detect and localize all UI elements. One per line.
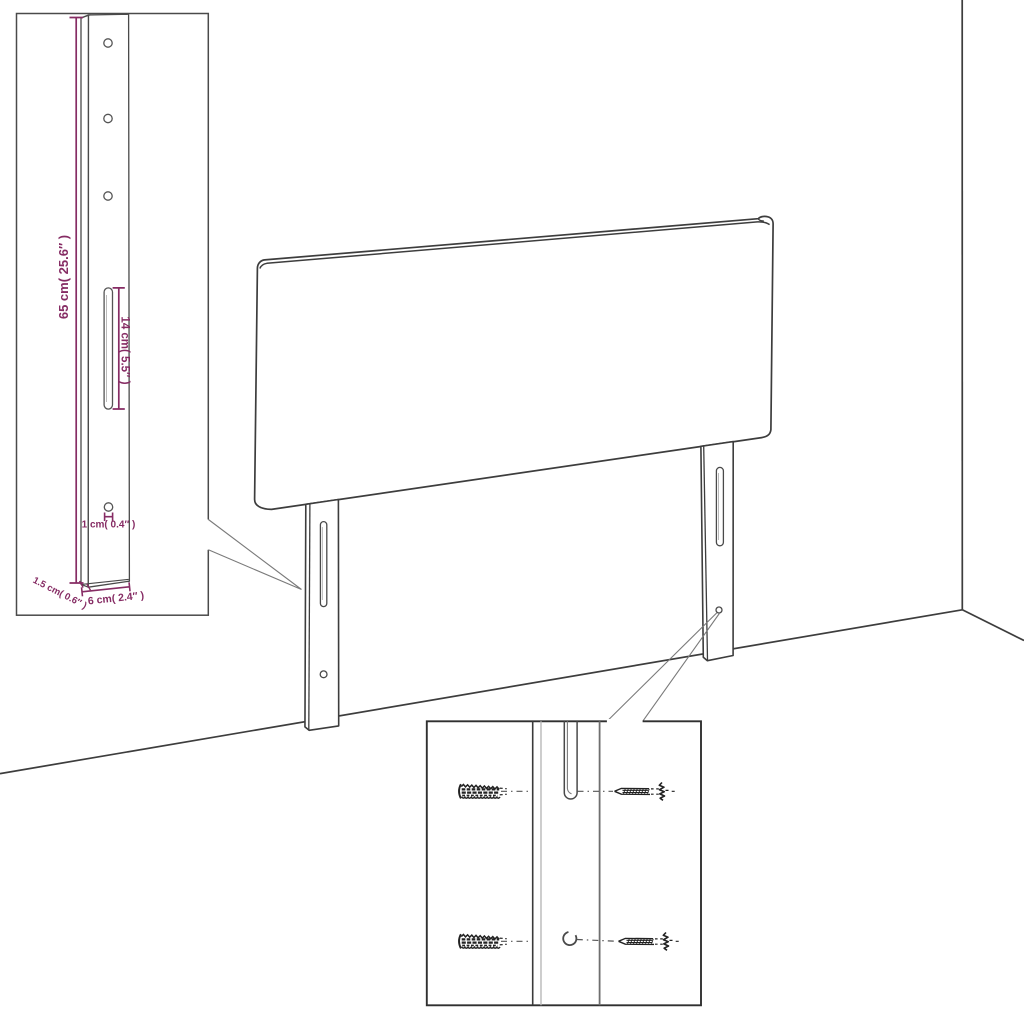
svg-text:65 cm( 25.6″ ): 65 cm( 25.6″ ) bbox=[56, 235, 71, 319]
svg-text:1 cm( 0.4″ ): 1 cm( 0.4″ ) bbox=[82, 520, 136, 531]
svg-text:14 cm( 5.5″ ): 14 cm( 5.5″ ) bbox=[119, 316, 131, 384]
